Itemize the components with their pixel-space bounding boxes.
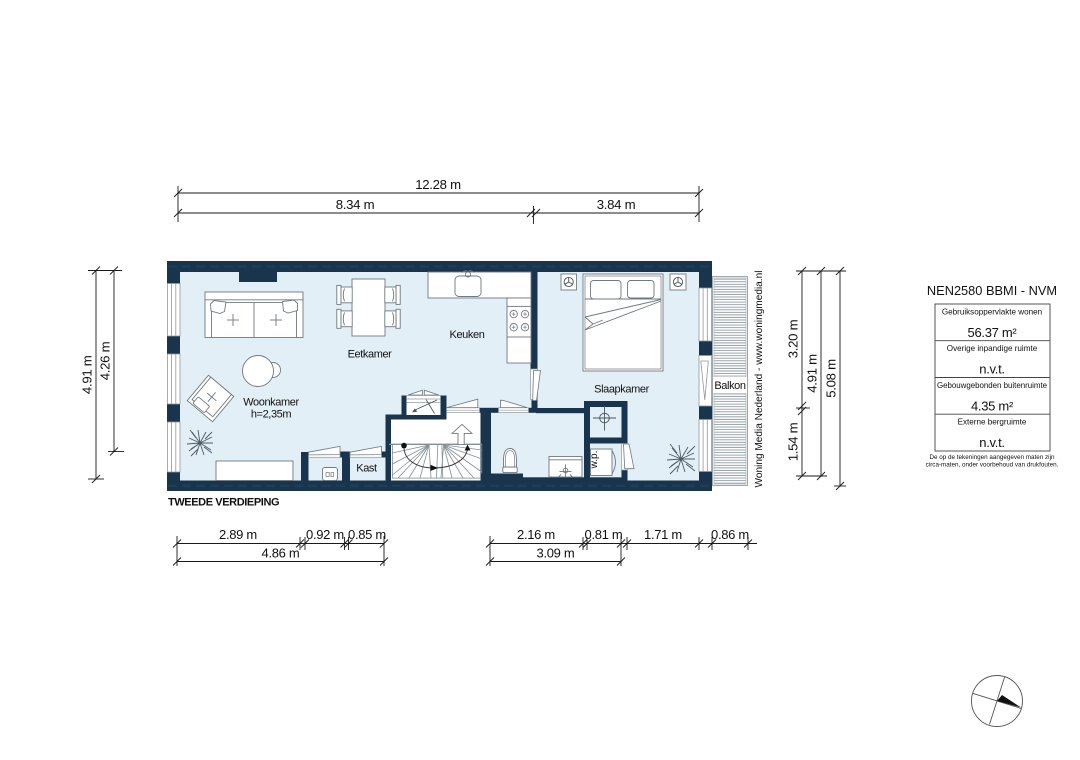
svg-text:8.34 m: 8.34 m xyxy=(336,197,375,212)
svg-text:0.86 m: 0.86 m xyxy=(711,527,749,542)
svg-text:3.20 m: 3.20 m xyxy=(786,319,801,358)
svg-text:Eetkamer: Eetkamer xyxy=(348,349,393,361)
svg-text:4.35 m²: 4.35 m² xyxy=(971,398,1014,413)
svg-text:Externe bergruimte: Externe bergruimte xyxy=(958,418,1027,427)
svg-text:h=2,35m: h=2,35m xyxy=(251,409,292,421)
svg-text:Kast: Kast xyxy=(356,463,377,475)
svg-text:12.28 m: 12.28 m xyxy=(415,177,461,192)
svg-text:circa-maten, onder voorbehoud: circa-maten, onder voorbehoud van drukfo… xyxy=(926,462,1059,469)
svg-text:Slaapkamer: Slaapkamer xyxy=(594,384,649,396)
svg-text:4.26 m: 4.26 m xyxy=(98,341,113,380)
svg-text:0.81 m: 0.81 m xyxy=(585,527,623,542)
svg-text:n.v.t.: n.v.t. xyxy=(979,435,1004,450)
svg-text:4.91 m: 4.91 m xyxy=(80,355,95,394)
svg-text:3.09 m: 3.09 m xyxy=(537,546,575,561)
svg-text:56.37 m²: 56.37 m² xyxy=(968,325,1018,340)
svg-text:1.71 m: 1.71 m xyxy=(644,527,682,542)
svg-text:De op de tekeningen aangegeven: De op de tekeningen aangegeven maten zij… xyxy=(930,454,1055,461)
svg-text:4.91 m: 4.91 m xyxy=(805,354,820,393)
svg-text:2.16 m: 2.16 m xyxy=(517,527,555,542)
svg-text:NEN2580 BBMI - NVM: NEN2580 BBMI - NVM xyxy=(927,283,1057,298)
svg-text:4.86 m: 4.86 m xyxy=(262,546,300,561)
svg-text:Woning Media Nederland - www.w: Woning Media Nederland - www.woningmedia… xyxy=(754,271,765,488)
svg-text:Overige inpandige ruimte: Overige inpandige ruimte xyxy=(947,344,1038,353)
svg-text:2.89 m: 2.89 m xyxy=(219,527,257,542)
svg-text:Gebruiksoppervlakte wonen: Gebruiksoppervlakte wonen xyxy=(942,308,1042,317)
svg-text:Woonkamer: Woonkamer xyxy=(243,397,299,409)
svg-text:0.92 m: 0.92 m xyxy=(306,527,344,542)
svg-text:Balkon: Balkon xyxy=(714,380,746,392)
svg-text:0.85 m: 0.85 m xyxy=(348,527,386,542)
svg-text:1.54 m: 1.54 m xyxy=(786,422,801,461)
svg-text:w.p.: w.p. xyxy=(589,451,600,470)
svg-text:Gebouwgebonden buitenruimte: Gebouwgebonden buitenruimte xyxy=(937,381,1048,390)
svg-text:TWEEDE VERDIEPING: TWEEDE VERDIEPING xyxy=(168,497,279,509)
svg-text:Keuken: Keuken xyxy=(450,329,485,341)
svg-text:5.08 m: 5.08 m xyxy=(824,359,839,398)
svg-text:3.84 m: 3.84 m xyxy=(597,197,636,212)
svg-text:n.v.t.: n.v.t. xyxy=(979,362,1004,377)
